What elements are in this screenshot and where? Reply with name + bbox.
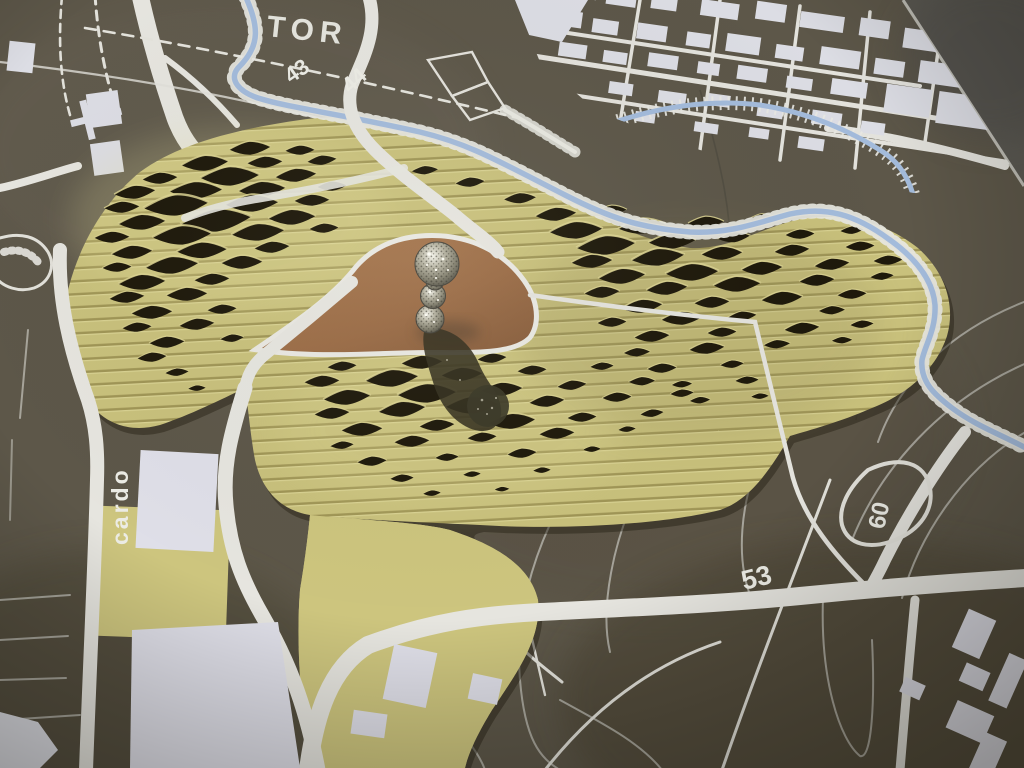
model-photograph: TOR 43 44 53 60 cardo [0,0,1024,768]
model-photo-canvas: TOR 43 44 53 60 cardo [0,0,1024,768]
photo-vignette [0,0,1024,768]
